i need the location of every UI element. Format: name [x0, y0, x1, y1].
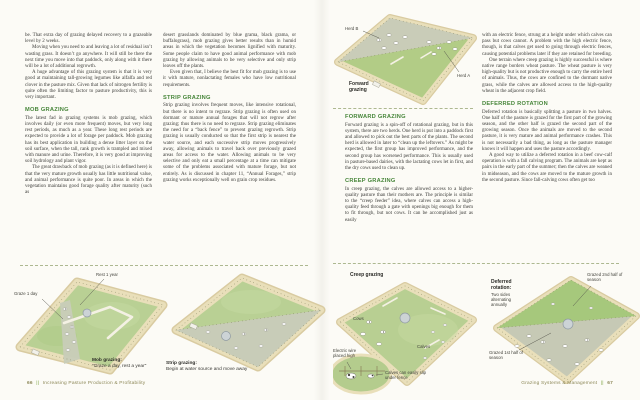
body-paragraph: The great drawback of mob grazing (as it… — [25, 165, 152, 196]
book-title: Increasing Pasture Production & Profitab… — [43, 381, 146, 386]
left-column-2: desert grasslands dominated by blue gram… — [163, 33, 296, 184]
right-column-2: with an electric fence, strung at a heig… — [482, 33, 612, 184]
section-heading-strip-grazing: STRIP GRAZING — [163, 95, 296, 101]
deferred-label-second-half: Grazed 2nd half of season — [587, 272, 629, 282]
left-column-1: be. That extra day of grazing delayed re… — [25, 33, 152, 196]
body-paragraph: One terrain where creep grazing is highl… — [482, 58, 612, 95]
body-paragraph: be. That extra day of grazing delayed re… — [25, 33, 152, 45]
footer-separator: || — [599, 381, 606, 386]
creep-label-electric-wire: Electric wire placed high — [333, 348, 359, 358]
deferred-subtitle: Two sides alternating annually — [491, 292, 523, 307]
body-paragraph: Forward grazing is a spin-off of rotatio… — [345, 123, 473, 173]
forward-label-herd-b: Herd B — [345, 26, 358, 31]
dashed-separator — [20, 265, 308, 266]
figure-mob-grazing: Graze 1 day Rest 1 year Mob grazing: “Gr… — [12, 271, 170, 379]
right-column-1: FORWARD GRAZING Forward grazing is a spi… — [345, 114, 473, 224]
strip-caption-subtitle: Begin at water source and move away — [166, 367, 247, 372]
figure-deferred-rotation: Deferred rotation: Two sides alternating… — [487, 270, 640, 388]
body-paragraph: A good way to utilize a deferred rotatio… — [482, 153, 612, 184]
creep-label-cows: Cows — [353, 316, 364, 321]
body-paragraph: Strip grazing involves frequent moves, l… — [163, 103, 296, 184]
left-page-footer: 66 || Increasing Pasture Production & Pr… — [27, 381, 145, 386]
right-page-footer: Grazing Systems & Management || 67 — [521, 381, 613, 386]
mob-caption: Mob grazing: “Graze a day, rest a year” — [92, 358, 170, 370]
strip-caption: Strip grazing: Begin at water source and… — [166, 361, 266, 373]
body-paragraph: Even given that, I believe the best fit … — [163, 70, 296, 89]
dashed-separator — [333, 108, 473, 109]
section-heading-creep-grazing: CREEP GRAZING — [345, 178, 473, 184]
body-paragraph: Moving when you need to and leaving a lo… — [25, 45, 152, 70]
body-paragraph: A huge advantage of this grazing system … — [25, 70, 152, 101]
forward-caption: Forward grazing — [349, 82, 375, 93]
deferred-title: Deferred rotation: — [491, 280, 531, 291]
body-paragraph: desert grasslands dominated by blue gram… — [163, 33, 296, 70]
mob-label-graze: Graze 1 day — [14, 291, 37, 296]
figure-strip-grazing: Strip grazing: Begin at water source and… — [166, 272, 328, 380]
creep-title: Creep grazing — [350, 273, 383, 279]
body-paragraph: In creep grazing, the calves are allowed… — [345, 187, 473, 224]
figure-creep-grazing: Creep grazing Cows Calves Electric wire … — [333, 270, 481, 398]
mob-caption-subtitle: “Graze a day, rest a year” — [92, 364, 146, 369]
body-paragraph: Deferred rotation is basically splitting… — [482, 110, 612, 153]
section-heading-forward-grazing: FORWARD GRAZING — [345, 114, 473, 120]
footer-separator: || — [34, 381, 41, 386]
forward-label-herd-a: Herd A — [457, 73, 470, 78]
body-paragraph: The latest fad in grazing systems is mob… — [25, 116, 152, 166]
creep-label-calves: Calves — [417, 344, 430, 349]
page-number: 66 — [27, 381, 33, 386]
creep-label-slip-under: Calves can easily slip under fence — [385, 370, 427, 380]
page-number: 67 — [607, 381, 613, 386]
chapter-title: Grazing Systems & Management — [521, 381, 597, 386]
body-paragraph: with an electric fence, strung at a heig… — [482, 33, 612, 58]
dashed-separator — [333, 263, 619, 264]
figure-forward-grazing: Herd B Herd A Forward grazing — [333, 2, 478, 106]
deferred-label-first-half: Grazed 1st half of season — [489, 350, 523, 360]
mob-label-rest: Rest 1 year — [96, 272, 118, 277]
section-heading-deferred-rotation: DEFERRED ROTATION — [482, 101, 612, 107]
section-heading-mob-grazing: MOB GRAZING — [25, 107, 152, 113]
book-spread: be. That extra day of grazing delayed re… — [0, 0, 640, 400]
